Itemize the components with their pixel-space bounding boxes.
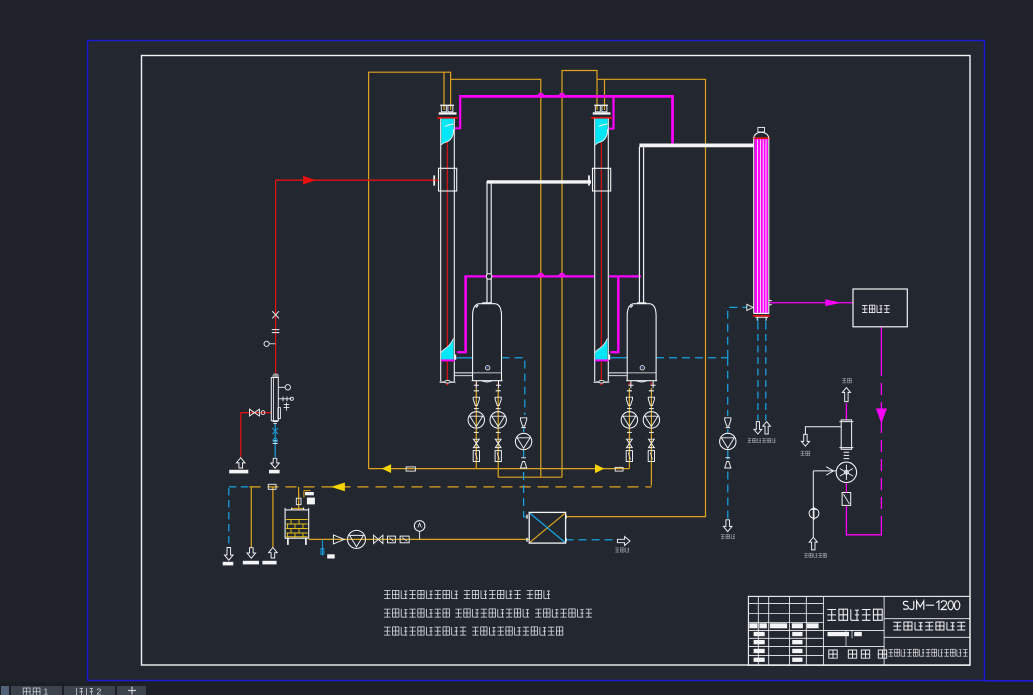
svg-text:2: 2 (97, 687, 102, 695)
svg-text:1: 1 (44, 687, 49, 695)
